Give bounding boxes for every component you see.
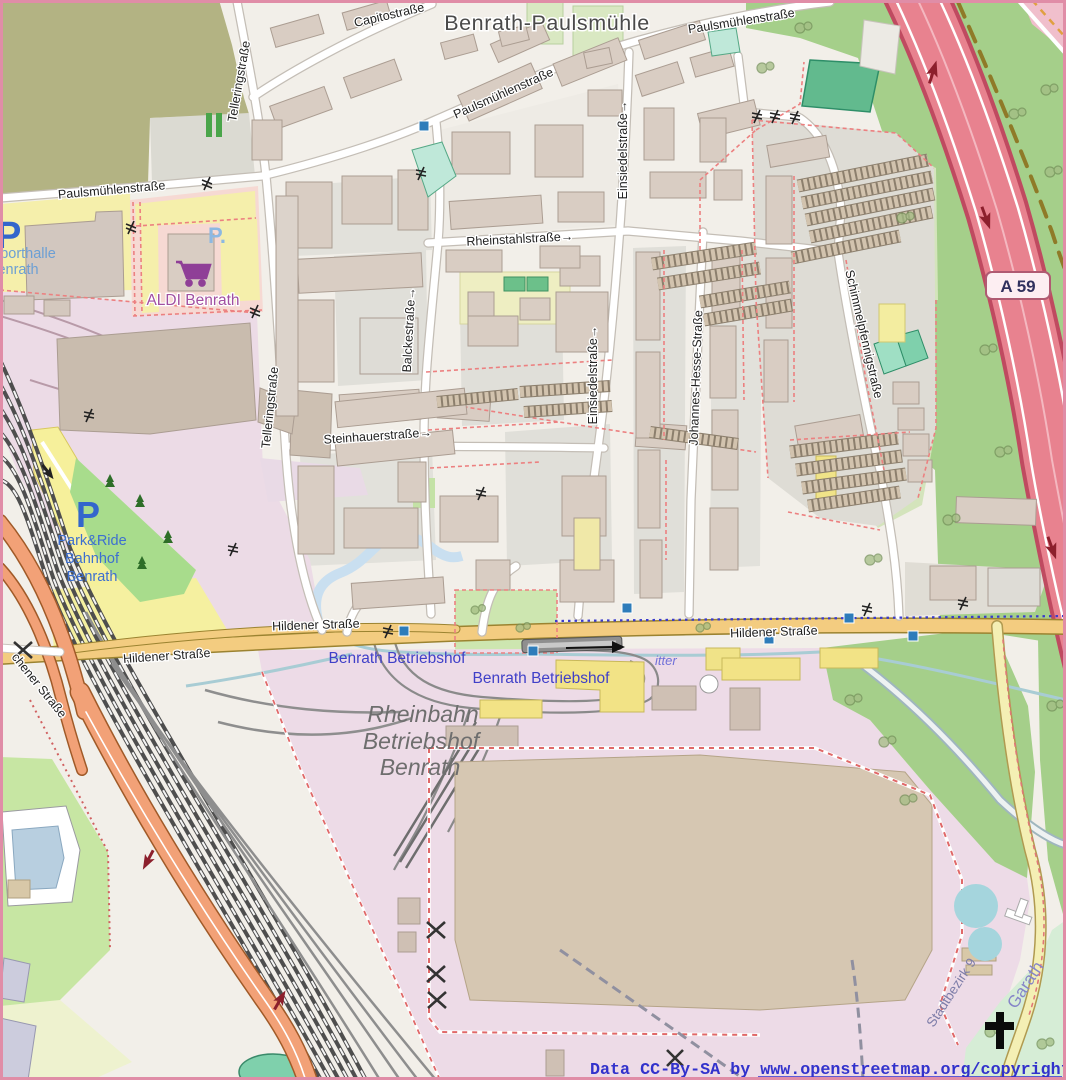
svg-text:Einsiedelstraße→: Einsiedelstraße→: [586, 326, 600, 425]
svg-text:Benrath: Benrath: [380, 754, 461, 780]
svg-text:enrath: enrath: [0, 262, 39, 278]
svg-text:Benrath-Paulsmühle: Benrath-Paulsmühle: [444, 11, 650, 35]
svg-text:P: P: [76, 494, 100, 535]
svg-text:Park&Ride: Park&Ride: [57, 533, 126, 549]
svg-text:Benrath Betriebshof: Benrath Betriebshof: [472, 670, 610, 687]
svg-text:Einsiedelstraße→: Einsiedelstraße→: [616, 101, 630, 200]
svg-text:Betriebshof: Betriebshof: [363, 728, 482, 754]
svg-text:A 59: A 59: [1000, 277, 1035, 296]
svg-text:ALDI Benrath: ALDI Benrath: [146, 292, 239, 309]
svg-text:Rheinbahn: Rheinbahn: [367, 701, 478, 727]
svg-text:P: P: [0, 215, 21, 257]
svg-text:Benrath: Benrath: [67, 569, 118, 585]
svg-text:Bahnhof: Bahnhof: [65, 551, 120, 567]
svg-text:P.: P.: [208, 223, 226, 248]
svg-text:Benrath Betriebshof: Benrath Betriebshof: [328, 650, 466, 667]
svg-text:itter: itter: [655, 653, 677, 668]
